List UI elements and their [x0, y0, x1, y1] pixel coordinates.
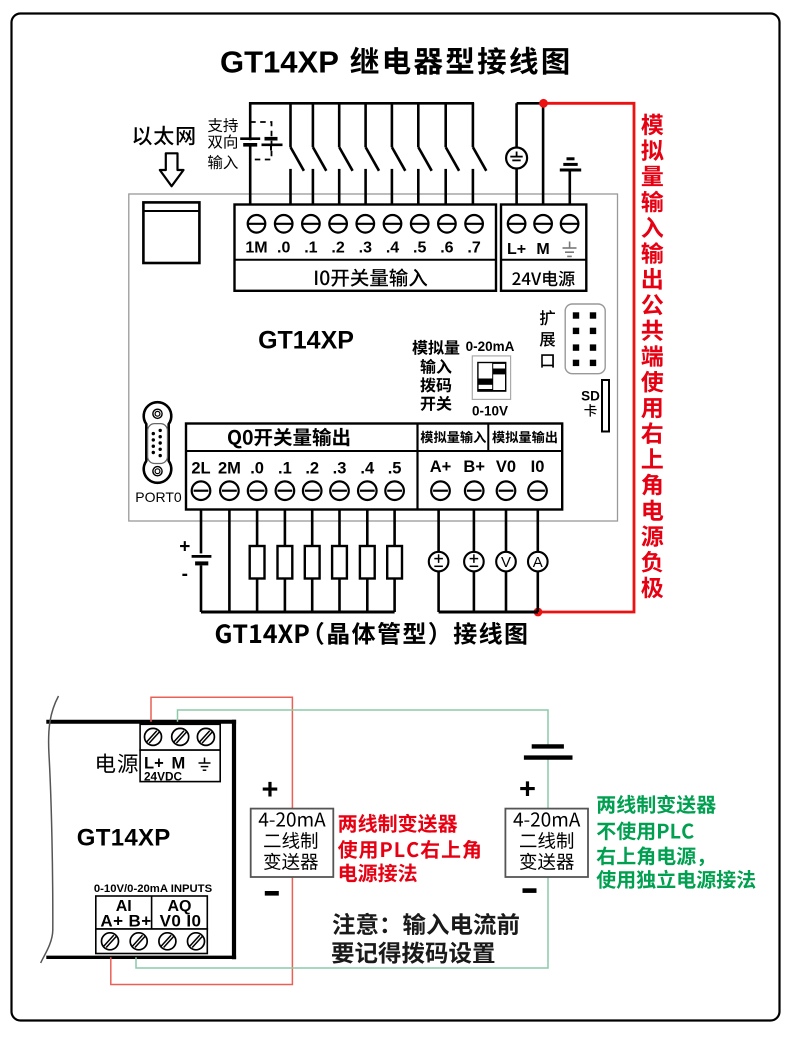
svg-text:.5: .5	[388, 460, 402, 478]
svg-text:V: V	[501, 554, 511, 571]
svg-text:0-20mA: 0-20mA	[466, 339, 515, 354]
svg-text:A: A	[533, 554, 543, 571]
svg-text:V0: V0	[496, 458, 516, 476]
svg-text:SD: SD	[581, 389, 600, 404]
svg-text:I0: I0	[531, 458, 545, 476]
svg-text:A+: A+	[430, 458, 452, 476]
svg-text:.2: .2	[305, 460, 319, 478]
svg-text:.5: .5	[413, 240, 426, 257]
svg-text:0-10V: 0-10V	[472, 403, 508, 418]
svg-text:PORT0: PORT0	[135, 489, 182, 505]
svg-text:+: +	[262, 774, 279, 806]
svg-text:.0: .0	[250, 460, 264, 478]
svg-text:.3: .3	[333, 460, 347, 478]
svg-text:.6: .6	[440, 240, 453, 257]
svg-text:A+ B+: A+ B+	[100, 911, 151, 930]
svg-text:.1: .1	[304, 240, 317, 257]
svg-text:2M: 2M	[218, 460, 241, 478]
svg-text:24VDC: 24VDC	[144, 770, 183, 784]
svg-text:B+: B+	[463, 458, 485, 476]
svg-text:0-10V/0-20mA INPUTS: 0-10V/0-20mA INPUTS	[94, 883, 213, 895]
svg-text:L+: L+	[507, 241, 526, 258]
svg-text:.4: .4	[386, 240, 399, 257]
svg-text:GT14XP: GT14XP	[220, 45, 339, 80]
svg-text:+: +	[519, 774, 536, 806]
svg-text:M: M	[536, 241, 549, 258]
svg-text:.2: .2	[331, 240, 344, 257]
svg-text:.3: .3	[359, 240, 372, 257]
svg-text:-: -	[182, 564, 188, 585]
svg-text:.4: .4	[360, 460, 375, 478]
svg-text:2L: 2L	[191, 460, 210, 478]
svg-text:.7: .7	[467, 240, 480, 257]
svg-text:+: +	[179, 537, 190, 558]
svg-text:.0: .0	[277, 240, 290, 257]
svg-text:V0 I0: V0 I0	[160, 911, 202, 930]
svg-text:GT14XP: GT14XP	[77, 825, 171, 852]
svg-text:GT14XP: GT14XP	[258, 327, 354, 355]
svg-text:1M: 1M	[245, 240, 267, 257]
svg-text:.1: .1	[278, 460, 292, 478]
